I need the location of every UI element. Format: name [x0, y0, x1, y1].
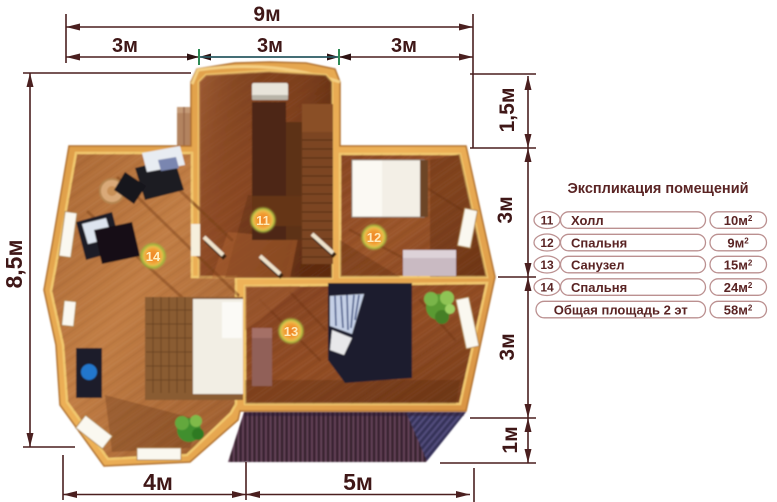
svg-text:12: 12: [540, 236, 554, 250]
svg-text:3м: 3м: [112, 35, 138, 57]
svg-text:1,5м: 1,5м: [496, 88, 519, 133]
svg-text:13: 13: [540, 258, 554, 272]
svg-text:3м: 3м: [257, 35, 283, 57]
svg-text:Экспликация помещений: Экспликация помещений: [567, 181, 748, 197]
svg-text:1м: 1м: [499, 426, 522, 453]
svg-text:14: 14: [540, 281, 554, 295]
svg-text:Холл: Холл: [571, 213, 604, 228]
svg-text:Общая площадь 2 эт: Общая площадь 2 эт: [554, 302, 688, 317]
svg-text:8,5м: 8,5м: [1, 240, 27, 289]
svg-text:Санузел: Санузел: [571, 257, 624, 272]
svg-text:14: 14: [146, 249, 161, 264]
svg-text:11: 11: [256, 213, 270, 228]
svg-text:13: 13: [284, 324, 298, 339]
svg-text:Спальня: Спальня: [571, 235, 627, 250]
svg-text:12: 12: [367, 230, 381, 245]
svg-text:5м: 5м: [343, 469, 373, 495]
svg-text:3м: 3м: [391, 35, 417, 57]
svg-text:3м: 3м: [494, 196, 517, 223]
svg-text:4м: 4м: [143, 469, 173, 495]
svg-text:11: 11: [541, 214, 554, 228]
svg-text:9м: 9м: [253, 3, 280, 26]
svg-text:3м: 3м: [496, 333, 519, 360]
svg-text:Спальня: Спальня: [571, 280, 627, 295]
